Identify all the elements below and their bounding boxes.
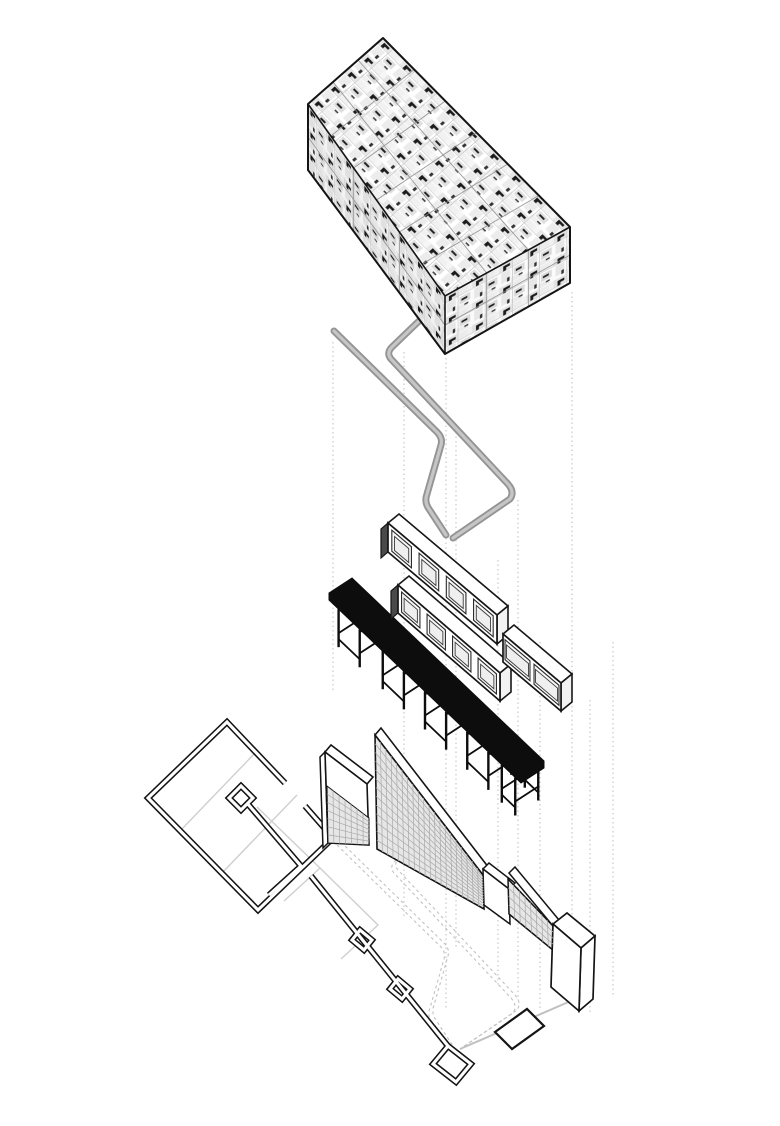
white-column [551, 913, 595, 1011]
wall-cabinet-3 [503, 625, 572, 711]
handrail-tube [334, 321, 512, 538]
collage-box-layer [308, 38, 570, 354]
diagram-canvas [0, 0, 780, 1126]
plan-walls [148, 722, 471, 1082]
tiled-tower [320, 745, 373, 848]
wall-cabinets-layer [381, 514, 572, 711]
tiled-return-wall [508, 867, 559, 951]
tiled-walls-layer [320, 728, 595, 1011]
exploded-axonometric-diagram [0, 0, 780, 1126]
